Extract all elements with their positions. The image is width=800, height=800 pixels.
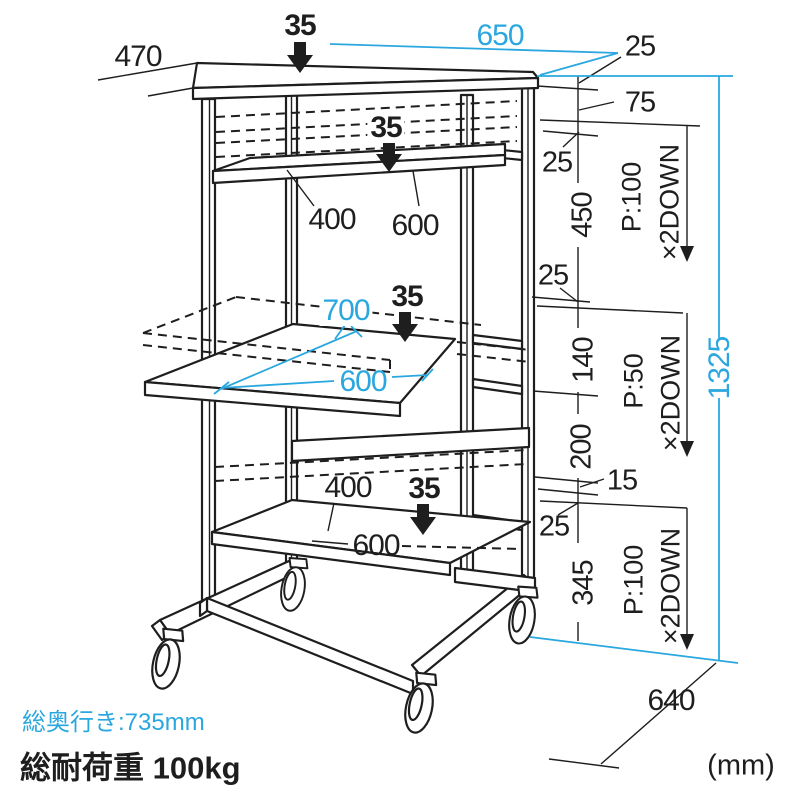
dim-640-label: 640 bbox=[647, 686, 694, 716]
dim-650-label: 650 bbox=[476, 21, 523, 51]
dim-25-top-label: 25 bbox=[625, 33, 655, 62]
dim-1325-label: 1325 bbox=[705, 337, 735, 400]
unit-mm-label: (mm) bbox=[707, 752, 775, 781]
dim-400-bottom-label: 400 bbox=[324, 473, 371, 503]
dim-25-third-label: 25 bbox=[538, 262, 568, 291]
load-35-shelf2-label: 35 bbox=[367, 113, 404, 143]
dim-25-fourth-label: 25 bbox=[539, 513, 569, 542]
dim-700-label: 700 bbox=[319, 296, 372, 326]
x2down-bottom-label: ×2DOWN bbox=[658, 528, 685, 644]
dim-600-slide-label: 600 bbox=[339, 367, 386, 397]
dim-450-label: 450 bbox=[569, 192, 598, 237]
dim-600-shelf2-label: 600 bbox=[391, 211, 438, 241]
dim-470-label: 470 bbox=[114, 42, 161, 72]
load-35-slide-label: 35 bbox=[388, 282, 425, 312]
dim-400-shelf2-label: 400 bbox=[308, 205, 355, 235]
dim-75-label: 75 bbox=[625, 89, 655, 118]
pitch-100-top-label: P:100 bbox=[619, 162, 646, 233]
pitch-50-label: P:50 bbox=[621, 353, 648, 409]
dim-140-label: 140 bbox=[570, 337, 599, 382]
dim-345-label: 345 bbox=[570, 560, 599, 605]
dimension-diagram: 470 35 650 25 75 25 450 P:100 ×2DOWN 35 … bbox=[0, 0, 800, 800]
dim-600-bottom-label: 600 bbox=[352, 531, 399, 561]
total-load-label: 総耐荷重 100kg bbox=[20, 753, 241, 784]
side-rails bbox=[473, 147, 522, 530]
dim-200-label: 200 bbox=[568, 424, 597, 469]
dim-25-second-label: 25 bbox=[542, 149, 572, 178]
load-35-bottom-label: 35 bbox=[408, 474, 439, 504]
x2down-mid-label: ×2DOWN bbox=[658, 335, 685, 451]
top-panel bbox=[193, 63, 538, 99]
dim-15-label: 15 bbox=[607, 467, 637, 496]
caster-front-left bbox=[148, 626, 186, 691]
load-35-top-label: 35 bbox=[284, 11, 315, 41]
pitch-100-bottom-label: P:100 bbox=[621, 545, 648, 616]
total-depth-label: 総奥行き:735mm bbox=[22, 711, 205, 735]
x2down-top-label: ×2DOWN bbox=[657, 144, 684, 260]
